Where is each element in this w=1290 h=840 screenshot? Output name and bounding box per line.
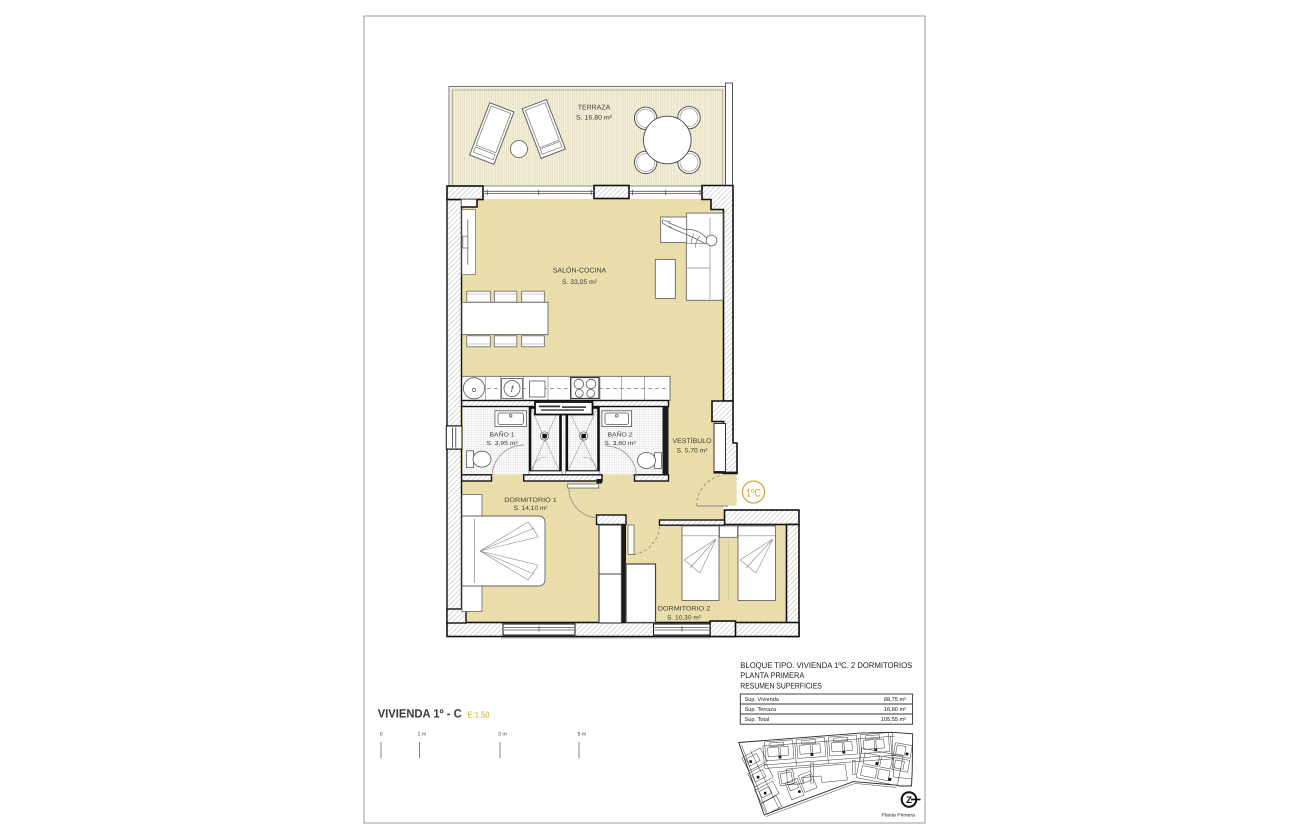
svg-text:BLOQUE TIPO. VIVIENDA 1ºC. 2 D: BLOQUE TIPO. VIVIENDA 1ºC. 2 DORMITORIOS [740,661,913,670]
svg-text:Sup. Vivienda: Sup. Vivienda [745,696,780,703]
svg-text:S. 5,70 m²: S. 5,70 m² [677,448,708,455]
svg-text:S. 3,80 m²: S. 3,80 m² [604,440,636,447]
svg-text:1 m: 1 m [418,732,427,738]
svg-text:E:1.50: E:1.50 [468,710,490,720]
svg-text:S. 10,30 m²: S. 10,30 m² [667,615,701,622]
svg-text:Z: Z [906,795,912,806]
svg-text:16,80 m²: 16,80 m² [884,707,906,713]
svg-text:88,75 m²: 88,75 m² [884,697,906,703]
svg-text:Sup. Terraza: Sup. Terraza [745,707,778,713]
svg-text:TERRAZA: TERRAZA [578,105,611,112]
svg-text:VIVIENDA 1º - C: VIVIENDA 1º - C [378,707,462,721]
svg-text:Sup. Total: Sup. Total [745,716,770,723]
svg-text:RESUMEN SUPERFICIES: RESUMEN SUPERFICIES [740,682,822,691]
svg-text:Planta Primera: Planta Primera [881,813,915,819]
svg-text:3 m: 3 m [498,732,507,738]
svg-text:5 m: 5 m [578,732,587,738]
svg-text:BAÑO 1: BAÑO 1 [490,431,516,439]
svg-text:0: 0 [380,732,383,738]
svg-text:BAÑO 2: BAÑO 2 [608,431,634,439]
svg-text:S. 16,80 m²: S. 16,80 m² [576,115,613,122]
svg-text:PLANTA PRIMERA: PLANTA PRIMERA [740,671,804,680]
svg-text:SALÓN-COCINA: SALÓN-COCINA [553,266,607,275]
svg-text:S. 33,05 m²: S. 33,05 m² [562,279,598,286]
svg-text:1ºC: 1ºC [746,488,761,500]
svg-text:105,55 m²: 105,55 m² [881,717,906,723]
svg-text:DORMITORIO 1: DORMITORIO 1 [504,497,557,504]
svg-text:S. 14,10 m²: S. 14,10 m² [514,505,548,512]
svg-text:DORMITORIO 2: DORMITORIO 2 [658,606,711,613]
svg-text:VESTÍBULO: VESTÍBULO [673,437,712,445]
svg-text:S. 3,95 m²: S. 3,95 m² [486,440,518,447]
